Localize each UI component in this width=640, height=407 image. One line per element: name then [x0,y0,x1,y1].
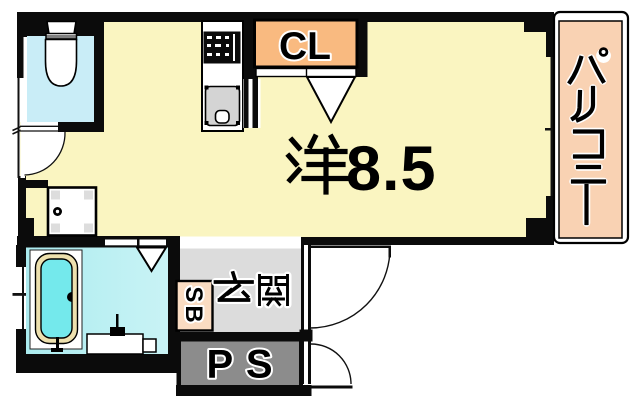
svg-text:SB: SB [180,286,207,325]
svg-text:CL: CL [279,25,331,68]
svg-text:8.5: 8.5 [346,134,437,204]
